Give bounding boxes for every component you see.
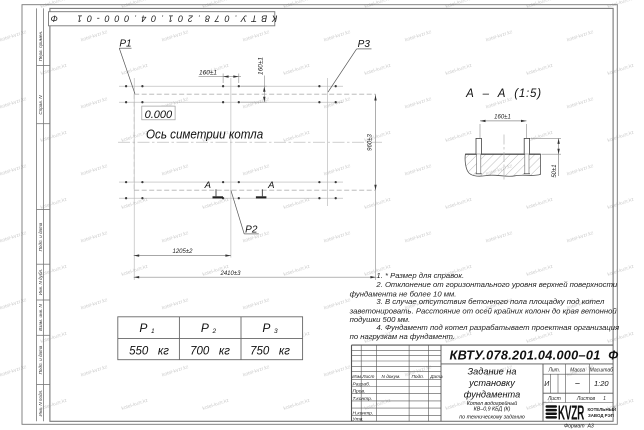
svg-text:Изм.Лист: Изм.Лист xyxy=(352,374,374,379)
svg-text:kotel-kvzr.kz: kotel-kvzr.kz xyxy=(566,29,594,43)
svg-text:A: A xyxy=(204,180,211,191)
svg-text:kotel-kvzr.kz: kotel-kvzr.kz xyxy=(40,331,68,345)
svg-text:Формат А3: Формат А3 xyxy=(564,424,594,430)
svg-text:kotel-kvzr.kz: kotel-kvzr.kz xyxy=(0,163,28,177)
svg-text:Масштаб: Масштаб xyxy=(590,367,614,373)
svg-text:Т.контр.: Т.контр. xyxy=(353,396,373,402)
svg-text:kotel-kvzr.kz: kotel-kvzr.kz xyxy=(80,297,108,311)
svg-text:КВ–0,9 КБД (К): КВ–0,9 КБД (К) xyxy=(474,407,511,413)
svg-text:по нагрузкам на фундамент.: по нагрузкам на фундамент. xyxy=(350,332,455,341)
svg-text:kotel-kvzr.kz: kotel-kvzr.kz xyxy=(526,197,554,211)
svg-text:kotel-kvzr.kz: kotel-kvzr.kz xyxy=(607,331,635,345)
svg-text:kotel-kvzr.kz: kotel-kvzr.kz xyxy=(485,29,513,43)
svg-text:Перв. примен.: Перв. примен. xyxy=(38,31,43,62)
svg-text:kotel-kvzr.kz: kotel-kvzr.kz xyxy=(323,29,351,43)
svg-text:kotel-kvzr.kz: kotel-kvzr.kz xyxy=(0,29,28,43)
svg-text:550 кг: 550 кг xyxy=(129,345,169,357)
svg-text:А – А (1:5): А – А (1:5) xyxy=(465,88,542,100)
svg-text:kotel-kvzr.kz: kotel-kvzr.kz xyxy=(364,63,392,77)
svg-text:kotel-kvzr.kz: kotel-kvzr.kz xyxy=(161,230,189,244)
svg-text:–: – xyxy=(574,379,580,388)
svg-text:kotel-kvzr.kz: kotel-kvzr.kz xyxy=(323,230,351,244)
svg-text:960±3: 960±3 xyxy=(368,134,374,151)
svg-text:1. * Размер для справок.: 1. * Размер для справок. xyxy=(376,271,464,280)
svg-text:Инв. N подл.: Инв. N подл. xyxy=(38,390,43,417)
svg-text:kotel-kvzr.kz: kotel-kvzr.kz xyxy=(404,29,432,43)
svg-text:kotel-kvzr.kz: kotel-kvzr.kz xyxy=(404,96,432,110)
svg-text:kotel-kvzr.kz: kotel-kvzr.kz xyxy=(0,364,28,378)
svg-text:Подп. и дата: Подп. и дата xyxy=(38,345,43,374)
svg-text:kotel-kvzr.kz: kotel-kvzr.kz xyxy=(526,63,554,77)
svg-text:kotel-kvzr.kz: kotel-kvzr.kz xyxy=(40,197,68,211)
svg-text:kotel-kvzr.kz: kotel-kvzr.kz xyxy=(202,197,230,211)
svg-text:750 кг: 750 кг xyxy=(250,345,290,357)
svg-text:kotel-kvzr.kz: kotel-kvzr.kz xyxy=(80,96,108,110)
svg-text:Лит.: Лит. xyxy=(547,367,560,373)
svg-text:kotel-kvzr.kz: kotel-kvzr.kz xyxy=(161,163,189,177)
svg-text:50±1: 50±1 xyxy=(552,164,558,177)
svg-text:kotel-kvzr.kz: kotel-kvzr.kz xyxy=(323,297,351,311)
svg-text:P1: P1 xyxy=(119,38,131,49)
svg-text:Дата: Дата xyxy=(429,374,443,379)
svg-text:kotel-kvzr.kz: kotel-kvzr.kz xyxy=(202,398,230,412)
svg-text:kotel-kvzr.kz: kotel-kvzr.kz xyxy=(283,63,311,77)
svg-text:kotel-kvzr.kz: kotel-kvzr.kz xyxy=(121,130,149,144)
svg-text:kotel-kvzr.kz: kotel-kvzr.kz xyxy=(283,264,311,278)
svg-text:kotel-kvzr.kz: kotel-kvzr.kz xyxy=(404,230,432,244)
svg-text:kotel-kvzr.kz: kotel-kvzr.kz xyxy=(283,197,311,211)
svg-text:фундамента: фундамента xyxy=(464,389,520,399)
svg-text:kotel-kvzr.kz: kotel-kvzr.kz xyxy=(121,398,149,412)
svg-text:КВТУ.078.201.04.000-01 Ф: КВТУ.078.201.04.000-01 Ф xyxy=(46,14,277,24)
svg-text:kotel-kvzr.kz: kotel-kvzr.kz xyxy=(445,63,473,77)
svg-text:kotel-kvzr.kz: kotel-kvzr.kz xyxy=(121,264,149,278)
svg-text:A: A xyxy=(267,180,274,191)
svg-text:kotel-kvzr.kz: kotel-kvzr.kz xyxy=(161,364,189,378)
svg-text:kotel-kvzr.kz: kotel-kvzr.kz xyxy=(40,63,68,77)
svg-text:kotel-kvzr.kz: kotel-kvzr.kz xyxy=(566,163,594,177)
svg-text:Подп.: Подп. xyxy=(412,374,424,379)
svg-text:Утв.: Утв. xyxy=(353,417,364,423)
svg-text:kotel-kvzr.kz: kotel-kvzr.kz xyxy=(121,197,149,211)
svg-text:kotel-kvzr.kz: kotel-kvzr.kz xyxy=(80,163,108,177)
svg-text:kotel-kvzr.kz: kotel-kvzr.kz xyxy=(566,96,594,110)
svg-text:kotel-kvzr.kz: kotel-kvzr.kz xyxy=(0,297,28,311)
svg-text:kotel-kvzr.kz: kotel-kvzr.kz xyxy=(283,130,311,144)
svg-text:160±1: 160±1 xyxy=(257,57,264,75)
svg-text:kotel-kvzr.kz: kotel-kvzr.kz xyxy=(445,130,473,144)
svg-text:ЗАВОД РЭП: ЗАВОД РЭП xyxy=(588,413,614,418)
svg-text:Ось симетрии котла: Ось симетрии котла xyxy=(146,127,263,142)
svg-text:КОТЕЛЬНЫЙ: КОТЕЛЬНЫЙ xyxy=(588,407,617,412)
svg-text:kotel-kvzr.kz: kotel-kvzr.kz xyxy=(242,96,270,110)
svg-text:kotel-kvzr.kz: kotel-kvzr.kz xyxy=(242,297,270,311)
svg-text:Подп. и дата: Подп. и дата xyxy=(38,222,43,251)
svg-text:kotel-kvzr.kz: kotel-kvzr.kz xyxy=(323,364,351,378)
svg-text:kotel-kvzr.kz: kotel-kvzr.kz xyxy=(445,197,473,211)
svg-text:Разраб.: Разраб. xyxy=(353,382,371,388)
svg-text:1205±2: 1205±2 xyxy=(173,249,194,255)
svg-text:установку: установку xyxy=(468,378,516,388)
svg-text:Н.контр.: Н.контр. xyxy=(353,410,374,416)
svg-text:Лист: Лист xyxy=(547,396,561,402)
svg-text:2. Отклонение от горизонтально: 2. Отклонение от горизонтального уровня … xyxy=(375,280,617,289)
svg-text:kotel-kvzr.kz: kotel-kvzr.kz xyxy=(0,96,28,110)
svg-text:kotel-kvzr.kz: kotel-kvzr.kz xyxy=(242,29,270,43)
svg-text:kotel-kvzr.kz: kotel-kvzr.kz xyxy=(0,230,28,244)
svg-text:kotel-kvzr.kz: kotel-kvzr.kz xyxy=(566,230,594,244)
svg-text:Масса: Масса xyxy=(570,367,585,373)
svg-text:kotel-kvzr.kz: kotel-kvzr.kz xyxy=(607,264,635,278)
svg-text:0.000: 0.000 xyxy=(145,109,173,121)
svg-text:kotel-kvzr.kz: kotel-kvzr.kz xyxy=(242,364,270,378)
svg-text:1: 1 xyxy=(603,396,606,402)
svg-text:KVZR: KVZR xyxy=(558,403,585,425)
svg-text:kotel-kvzr.kz: kotel-kvzr.kz xyxy=(364,197,392,211)
svg-text:kotel-kvzr.kz: kotel-kvzr.kz xyxy=(607,197,635,211)
svg-text:P3: P3 xyxy=(358,39,371,50)
svg-text:kotel-kvzr.kz: kotel-kvzr.kz xyxy=(161,29,189,43)
svg-text:Листов: Листов xyxy=(576,396,596,402)
svg-text:kotel-kvzr.kz: kotel-kvzr.kz xyxy=(80,230,108,244)
svg-text:Инв. N дубл.: Инв. N дубл. xyxy=(38,269,43,296)
svg-text:kotel-kvzr.kz: kotel-kvzr.kz xyxy=(40,398,68,412)
svg-text:4. Фундамент под котел разраба: 4. Фундамент под котел разрабатывает про… xyxy=(376,323,619,332)
svg-text:Справ. N: Справ. N xyxy=(38,95,43,115)
svg-text:Пров.: Пров. xyxy=(353,389,366,395)
svg-text:1:20: 1:20 xyxy=(594,379,609,388)
svg-text:kotel-kvzr.kz: kotel-kvzr.kz xyxy=(242,163,270,177)
svg-text:2410±3: 2410±3 xyxy=(220,271,242,277)
svg-text:kotel-kvzr.kz: kotel-kvzr.kz xyxy=(526,264,554,278)
svg-text:160±1: 160±1 xyxy=(494,115,511,121)
svg-text:700 кг: 700 кг xyxy=(190,345,230,357)
svg-text:kotel-kvzr.kz: kotel-kvzr.kz xyxy=(607,63,635,77)
svg-text:Задание на: Задание на xyxy=(468,366,517,376)
svg-text:kotel-kvzr.kz: kotel-kvzr.kz xyxy=(40,264,68,278)
svg-text:kotel-kvzr.kz: kotel-kvzr.kz xyxy=(485,230,513,244)
svg-text:P2: P2 xyxy=(245,225,258,236)
svg-text:kotel-kvzr.kz: kotel-kvzr.kz xyxy=(526,130,554,144)
svg-text:kotel-kvzr.kz: kotel-kvzr.kz xyxy=(80,364,108,378)
svg-text:kotel-kvzr.kz: kotel-kvzr.kz xyxy=(607,130,635,144)
svg-text:kotel-kvzr.kz: kotel-kvzr.kz xyxy=(526,331,554,345)
svg-text:kotel-kvzr.kz: kotel-kvzr.kz xyxy=(283,398,311,412)
svg-text:по техническому заданию: по техническому заданию xyxy=(459,415,524,421)
svg-text:3. В случае отсутствия бетонно: 3. В случае отсутствия бетонного пола пл… xyxy=(376,297,605,306)
svg-text:kotel-kvzr.kz: kotel-kvzr.kz xyxy=(80,29,108,43)
svg-text:И: И xyxy=(544,381,550,388)
svg-text:kotel-kvzr.kz: kotel-kvzr.kz xyxy=(40,130,68,144)
svg-text:160±1: 160±1 xyxy=(199,69,217,76)
svg-text:КВТУ.078.201.04.000–01 Ф: КВТУ.078.201.04.000–01 Ф xyxy=(450,349,619,363)
svg-text:Взам. инв. N: Взам. инв. N xyxy=(38,303,43,330)
svg-text:kotel-kvzr.kz: kotel-kvzr.kz xyxy=(404,163,432,177)
svg-text:kotel-kvzr.kz: kotel-kvzr.kz xyxy=(161,297,189,311)
svg-text:N докум.: N докум. xyxy=(382,374,401,379)
